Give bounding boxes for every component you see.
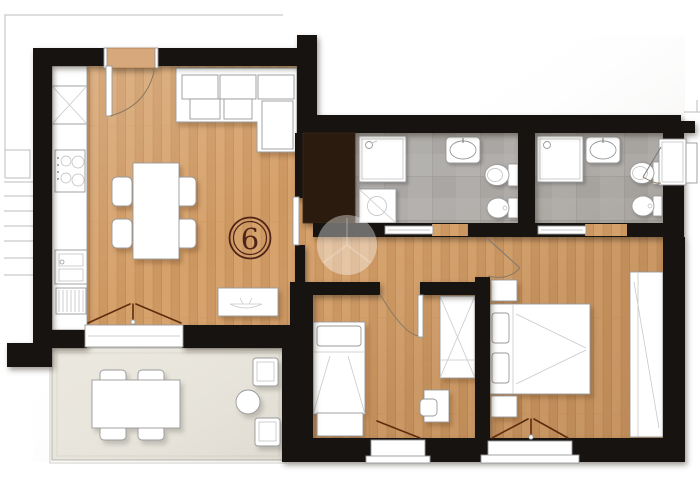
double-bed bbox=[490, 304, 590, 394]
outdoor-side-table bbox=[236, 390, 260, 414]
nightstand bbox=[491, 396, 517, 417]
door-leaf bbox=[418, 295, 423, 337]
closet-block bbox=[303, 133, 355, 223]
dresser bbox=[317, 413, 363, 436]
wall-segment bbox=[295, 245, 305, 325]
unit-number: 6 bbox=[241, 222, 259, 256]
washing-machine-icon bbox=[359, 189, 396, 223]
wall-segment bbox=[475, 277, 490, 438]
wall-segment bbox=[317, 115, 681, 133]
nightstand bbox=[491, 280, 517, 301]
wall-segment bbox=[155, 48, 297, 66]
wall-segment bbox=[518, 133, 535, 223]
kitchen-sink-icon bbox=[55, 250, 87, 284]
dishwasher-icon bbox=[56, 288, 86, 314]
washbasin-icon bbox=[446, 137, 480, 163]
washbasin-icon bbox=[586, 137, 620, 163]
door-leaf bbox=[106, 66, 112, 116]
toilet-icon bbox=[630, 162, 662, 184]
wall-segment bbox=[295, 282, 380, 295]
entrance-door-leaf-closed bbox=[107, 48, 155, 68]
photo-watermark bbox=[317, 215, 377, 275]
staircase-outline bbox=[4, 182, 38, 275]
sliding-door-bath-1 bbox=[385, 224, 468, 236]
dining-chair bbox=[112, 177, 132, 206]
wall-segment bbox=[681, 121, 695, 133]
wall-segment bbox=[297, 35, 317, 133]
fridge-icon bbox=[52, 86, 87, 124]
wall-segment bbox=[52, 330, 87, 348]
dining-table bbox=[133, 163, 179, 259]
bidet-icon bbox=[487, 198, 518, 218]
toilet-icon bbox=[485, 164, 518, 186]
floorplan-image: 6 bbox=[0, 0, 700, 494]
pillow bbox=[492, 313, 509, 343]
right-exterior-line bbox=[684, 100, 700, 112]
wardrobe-master bbox=[630, 272, 663, 437]
single-bed bbox=[313, 322, 365, 414]
bidet-icon bbox=[632, 196, 662, 216]
sliding-door-bath-2 bbox=[538, 224, 627, 236]
outdoor-table bbox=[92, 380, 180, 428]
sliding-door-living bbox=[293, 197, 299, 245]
outdoor-armchair bbox=[255, 418, 280, 446]
wardrobe-middle bbox=[440, 296, 475, 378]
media-console bbox=[218, 288, 278, 316]
wall-segment bbox=[663, 237, 685, 462]
outdoor-armchair bbox=[253, 358, 278, 386]
wall-segment bbox=[33, 48, 52, 343]
wall-segment bbox=[7, 343, 52, 367]
stove-icon bbox=[55, 150, 85, 192]
desk-chair bbox=[420, 399, 437, 416]
shower-icon bbox=[359, 136, 406, 182]
shower-icon bbox=[537, 136, 583, 182]
pillow bbox=[492, 353, 509, 383]
pillow bbox=[317, 326, 361, 346]
dining-chair bbox=[112, 219, 132, 248]
